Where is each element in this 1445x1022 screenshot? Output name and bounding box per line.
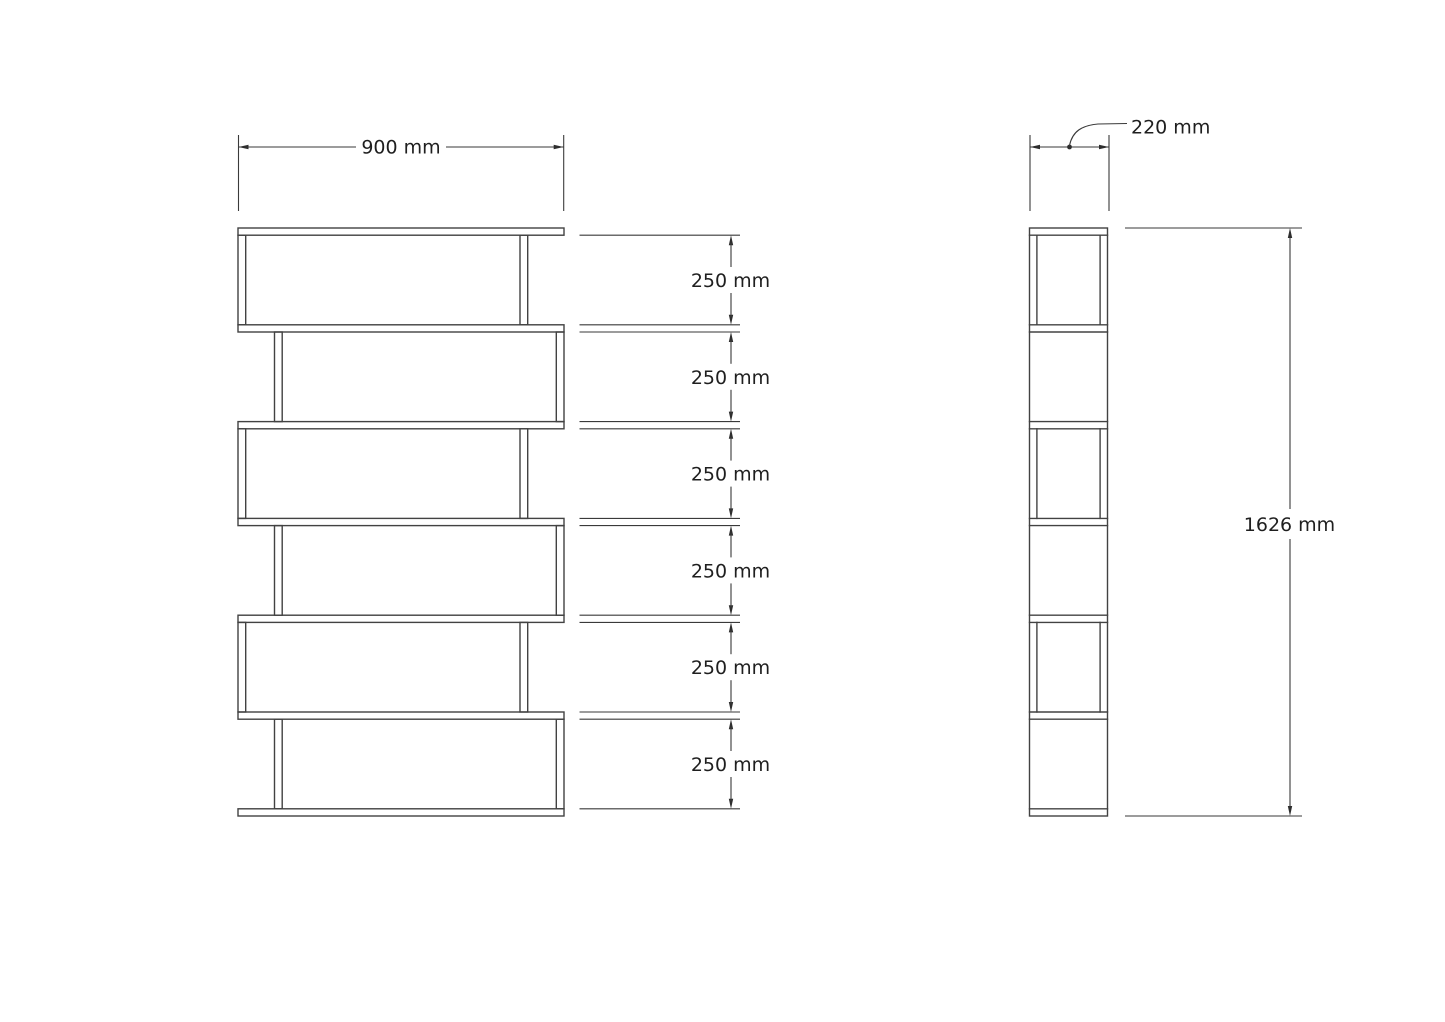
- depth-dim-label: 220 mm: [1131, 117, 1210, 139]
- section3-right-divider: [520, 429, 528, 519]
- dimension-shelf-spacing-stack: 250 mm 250 mm 250 mm 250 mm: [580, 235, 771, 809]
- front-board-4: [238, 518, 564, 525]
- dimension-height-1626: 1626 mm: [1125, 228, 1335, 816]
- section-dim-label: 250 mm: [691, 464, 770, 486]
- side-view: [1030, 228, 1108, 816]
- height-dim-label: 1626 mm: [1244, 514, 1335, 536]
- dimension-width-900: 900 mm: [239, 135, 564, 211]
- arrow-up-icon: [1288, 228, 1292, 238]
- section6-right-panel: [556, 719, 564, 809]
- dim-section-1: 250 mm: [691, 235, 770, 325]
- front-board-5: [238, 615, 564, 622]
- section2-left-divider: [275, 332, 283, 422]
- dim-section-6: 250 mm: [691, 719, 770, 809]
- section6-left-divider: [275, 719, 283, 809]
- arrow-down-icon: [1288, 806, 1292, 816]
- section-dim-label: 250 mm: [691, 270, 770, 292]
- arrow-left-icon: [1030, 145, 1040, 150]
- leader-curve: [1070, 124, 1128, 146]
- arrow-right-icon: [554, 145, 564, 150]
- shelf-extension-lines: [580, 235, 741, 809]
- side-outline: [1030, 228, 1108, 816]
- front-board-6: [238, 712, 564, 719]
- dimension-depth-220: 220 mm: [1030, 117, 1210, 212]
- dim-section-3: 250 mm: [691, 429, 770, 519]
- front-view: [238, 228, 564, 816]
- front-board-3: [238, 422, 564, 429]
- section-dim-label: 250 mm: [691, 560, 770, 582]
- section5-left-panel: [238, 622, 246, 712]
- dim-section-5: 250 mm: [691, 622, 770, 712]
- dim-section-2: 250 mm: [691, 332, 770, 422]
- front-vertical-panels-odd-sections: [238, 235, 528, 712]
- section1-left-panel: [238, 235, 246, 325]
- front-board-top: [238, 228, 564, 235]
- section-dim-label: 250 mm: [691, 657, 770, 679]
- front-board-bottom: [238, 809, 564, 816]
- arrow-left-icon: [239, 145, 249, 150]
- section1-right-divider: [520, 235, 528, 325]
- technical-drawing-page: 900 mm 250 mm: [0, 0, 1445, 1022]
- front-shelf-boards: [238, 228, 564, 816]
- section-dim-label: 250 mm: [691, 754, 770, 776]
- section-dim-label: 250 mm: [691, 367, 770, 389]
- width-dim-label: 900 mm: [361, 137, 440, 159]
- front-vertical-panels-even-sections: [275, 332, 565, 809]
- section4-right-panel: [556, 526, 564, 616]
- section2-right-panel: [556, 332, 564, 422]
- side-shelf-lines: [1030, 235, 1108, 809]
- section5-right-divider: [520, 622, 528, 712]
- section4-left-divider: [275, 526, 283, 616]
- front-board-2: [238, 325, 564, 332]
- section3-left-panel: [238, 429, 246, 519]
- bookshelf-dimension-drawing: 900 mm 250 mm: [0, 0, 1445, 1022]
- dim-section-4: 250 mm: [691, 526, 770, 616]
- arrow-right-icon: [1099, 145, 1109, 150]
- side-panel-edge-lines: [1037, 235, 1100, 712]
